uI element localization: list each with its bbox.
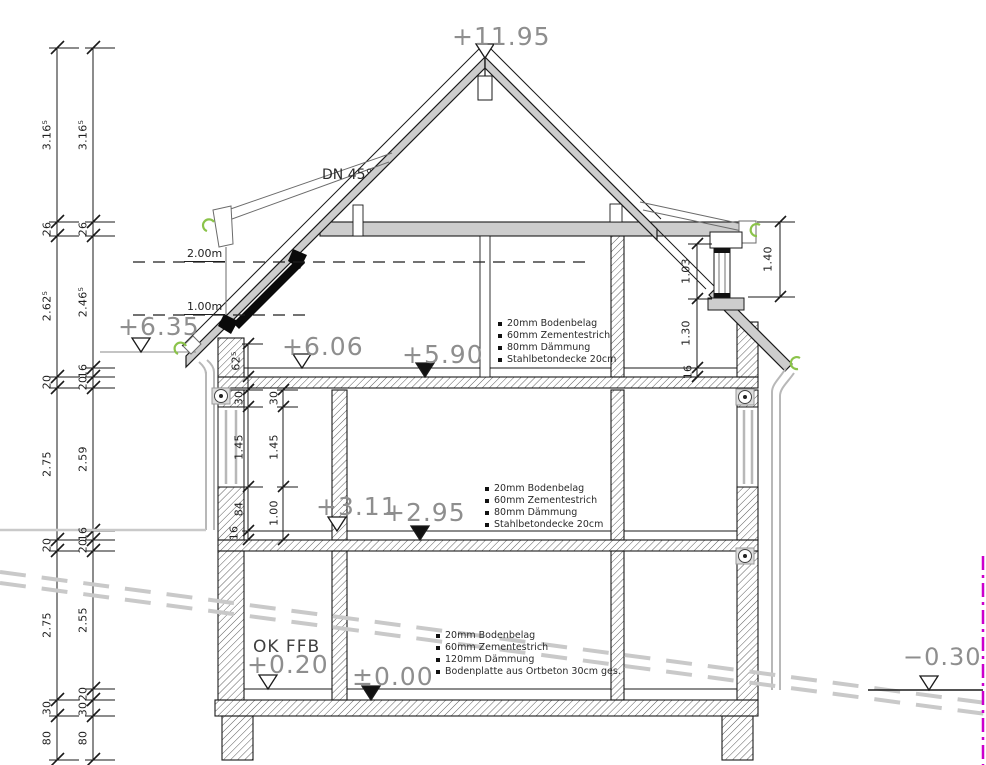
ridge-post — [478, 76, 492, 100]
buildup-item: 80mm Dämmung — [507, 342, 590, 354]
dim-label: 20 — [77, 687, 90, 702]
bullet-icon — [485, 523, 489, 527]
bullet-icon — [485, 487, 489, 491]
level-ridge: +11.95 — [452, 22, 551, 51]
level-og-raw: +2.95 — [384, 498, 466, 527]
windows — [218, 407, 758, 487]
bullet-icon — [436, 670, 440, 674]
dim-label-knee: 62⁵ — [230, 351, 243, 370]
gutter-left-upper — [203, 219, 214, 231]
marker-og-raw — [411, 526, 429, 540]
bullet-icon — [498, 334, 502, 338]
rafter-right — [485, 57, 657, 240]
bracket-left-og — [212, 388, 230, 404]
bullet-icon — [498, 322, 502, 326]
section-drawing: +11.95 +6.35 +6.06 +5.90 +3.11 +2.95 OK … — [0, 0, 986, 765]
dim-label: 2.62⁵ — [41, 291, 54, 321]
right-eave — [772, 357, 800, 690]
buildup-item: 60mm Zementestrich — [507, 330, 610, 342]
level-dg-raw: +5.90 — [402, 340, 484, 369]
dim-label-right-eave: 1.40 — [762, 246, 775, 272]
bullet-icon — [436, 646, 440, 650]
buildup-item: 80mm Dämmung — [494, 507, 577, 519]
buildup-eg: 20mm Bodenbelag 60mm Zementestrich 120mm… — [436, 630, 621, 678]
dim-label: 16 — [682, 365, 695, 380]
level-eaves-left: +6.35 — [118, 312, 200, 341]
footing-right — [722, 716, 753, 760]
collar-ceiling — [320, 222, 740, 236]
marker-ground-right — [920, 676, 938, 690]
dormer-sill-block — [708, 298, 744, 310]
eg-ground-slab — [215, 700, 758, 716]
dim-label: 2.46⁵ — [77, 287, 90, 317]
dim-label: 1.45 — [268, 434, 281, 460]
dim-label: 84 — [233, 502, 246, 517]
bullet-icon — [436, 634, 440, 638]
level-dg-ffb: +6.06 — [282, 332, 364, 361]
dim-label: 1.30 — [680, 320, 693, 346]
dimension-ticks — [49, 41, 795, 765]
buildup-item: 60mm Zementestrich — [445, 642, 548, 654]
dim-label: 20 — [41, 538, 54, 553]
dim-label: 30 — [77, 702, 90, 717]
buildup-og: 20mm Bodenbelag 60mm Zementestrich 80mm … — [485, 483, 603, 531]
dim-label: 30 — [268, 391, 281, 406]
bullet-icon — [485, 511, 489, 515]
og-interior-wall-right — [611, 390, 624, 540]
bracket-right-og — [736, 389, 754, 405]
level-ground-right: −0.30 — [903, 643, 982, 671]
dim-label: 3.16⁵ — [77, 120, 90, 150]
level-eg-raw: ±0.00 — [352, 662, 434, 691]
dim-label: 30 — [233, 391, 246, 406]
footing-left — [222, 716, 253, 760]
dim-label: 80 — [77, 731, 90, 746]
buildup-item: 20mm Bodenbelag — [494, 483, 584, 495]
dim-label: 2.59 — [77, 446, 90, 472]
og-right-sill-wall — [737, 487, 758, 540]
dim-label: 2.75 — [41, 451, 54, 477]
gutter-right — [791, 357, 800, 369]
purlin-post-left — [353, 205, 363, 236]
roof-covering-right — [489, 47, 661, 219]
buildup-item: Stahlbetondecke 20cm — [494, 519, 603, 531]
floor-slabs — [215, 377, 758, 760]
buildup-item: 120mm Dämmung — [445, 654, 534, 666]
bullet-icon — [485, 499, 489, 503]
dimension-chains — [57, 48, 792, 760]
dormer-lintel — [710, 232, 742, 248]
head-height-1m-label: 1.00m — [184, 300, 225, 315]
dim-label: 20 — [41, 375, 54, 390]
bracket-right-eg — [736, 548, 754, 564]
og-floor-slab — [218, 540, 758, 551]
purlin-post-right — [610, 204, 622, 222]
buildup-item: Stahlbetondecke 20cm — [507, 354, 616, 366]
bullet-icon — [436, 658, 440, 662]
buildup-item: Bodenplatte aus Ortbeton 30cm ges. — [445, 666, 621, 678]
buildup-dg: 20mm Bodenbelag 60mm Zementestrich 80mm … — [498, 318, 616, 366]
pipe-brackets — [212, 388, 754, 564]
left-eave — [100, 336, 214, 530]
buildup-item: 20mm Bodenbelag — [507, 318, 597, 330]
dim-label: 1.00 — [268, 500, 281, 526]
dim-label: 20 — [77, 539, 90, 554]
dim-label: 1.45 — [233, 434, 246, 460]
dim-label: 2.55 — [77, 607, 90, 633]
dormer-window-frame — [714, 248, 730, 298]
dim-label: 16 — [228, 526, 241, 541]
dim-label: 1.03 — [680, 258, 693, 284]
dim-label: 20 — [77, 376, 90, 391]
head-height-2m-label: 2.00m — [184, 247, 225, 262]
level-eg-ffb: +0.20 — [247, 650, 329, 679]
buildup-item: 20mm Bodenbelag — [445, 630, 535, 642]
dim-label: 26 — [41, 222, 54, 237]
dim-label: 30 — [41, 701, 54, 716]
bullet-icon — [498, 358, 502, 362]
roof-pitch-label: DN 45° — [322, 167, 373, 183]
roof-covering-left — [182, 47, 481, 346]
dim-label: 80 — [41, 731, 54, 746]
eg-left-wall — [218, 551, 244, 700]
dormer-window-sill-cap — [714, 293, 730, 298]
dormer-window-head — [714, 248, 730, 253]
dim-label: 2.75 — [41, 612, 54, 638]
dim-label: 3.16⁵ — [41, 120, 54, 150]
bullet-icon — [498, 346, 502, 350]
dg-floor-slab — [218, 377, 758, 388]
eg-right-wall — [737, 551, 758, 700]
dim-label: 26 — [77, 222, 90, 237]
buildup-item: 60mm Zementestrich — [494, 495, 597, 507]
og-right-window — [737, 407, 758, 487]
